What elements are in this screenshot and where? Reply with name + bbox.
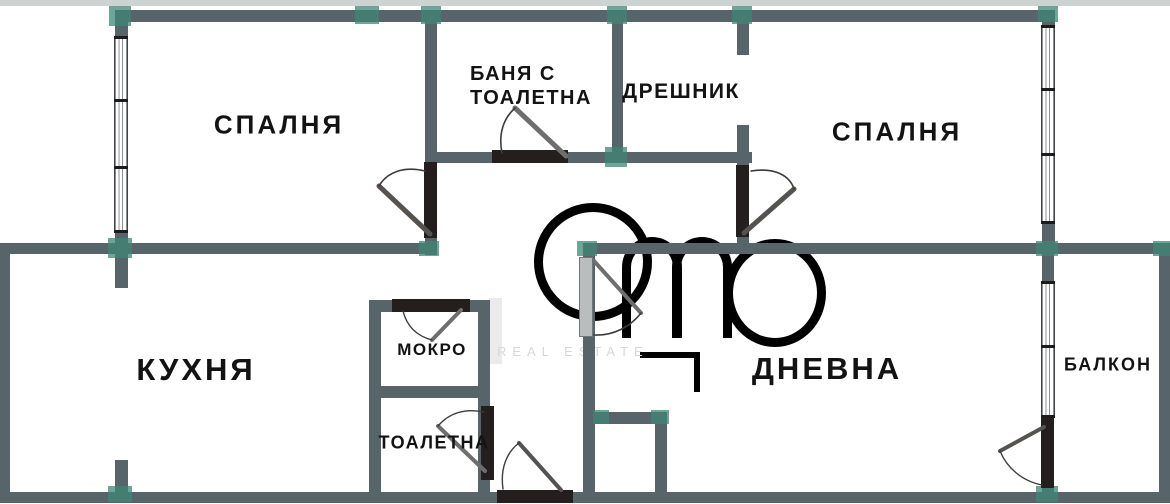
wall-joint [421,6,441,24]
window-divider [1041,221,1055,224]
door-balcony [1041,418,1054,488]
wall-joint [1153,241,1170,256]
watermark-logo-bracket [640,352,700,392]
watermark-logo-o [724,239,826,347]
wall [1159,243,1170,503]
wall [0,243,10,503]
room-label-utility: МОКРО [397,340,467,360]
room-label-bathroom-line1: БАНЯ С [470,62,592,86]
door-swing-bedroom-left [379,169,430,234]
window-divider [114,166,128,169]
wall-joint [605,147,627,167]
door-living-leaf [579,257,593,337]
door-bathroom [492,150,568,163]
wall [369,300,381,503]
wall-joint [108,486,132,502]
wall-joint [355,6,379,24]
room-label-balcony: БАЛКОН [1064,355,1152,376]
door-entry [497,490,573,503]
wall [0,243,432,254]
window-divider [1041,25,1055,28]
door-swing-entry [502,443,561,490]
door-swing-bathroom [501,108,566,156]
room-label-bathroom-line2: ТОАЛЕТНА [470,86,592,110]
door-swing-balcony [1000,427,1044,485]
wall-joint [1038,6,1058,22]
wall [425,152,752,163]
wall [583,243,1170,254]
floor-plan: REAL ESTATE [0,0,1170,504]
wall-joint [419,241,439,256]
wall-joint [732,6,752,24]
room-label-living: ДНЕВНА [752,351,902,387]
window-bedroom-left [114,36,128,233]
wall [369,386,488,398]
door-swing-bedroom-right [744,170,794,233]
window-divider [114,230,128,233]
wall-joint [109,6,131,26]
wall-joint [577,241,597,256]
window-divider [1041,345,1055,348]
wall-joint [607,6,627,24]
wall-joint [651,410,669,424]
door-bedroom-left [424,162,437,238]
window-divider [114,36,128,39]
room-label-bathroom: БАНЯ С ТОАЛЕТНА [470,62,592,110]
window-divider [1041,281,1055,284]
room-label-kitchen: КУХНЯ [136,352,255,388]
door-swing-utility [403,310,461,340]
room-label-toilet: ТОАЛЕТНА [379,433,490,454]
wall [115,10,1053,22]
page-top-edge [0,0,1170,6]
wall [655,412,667,503]
wall-joint [1036,241,1058,256]
watermark-text: REAL ESTATE [497,344,649,359]
window-divider [114,99,128,102]
wall-joint [593,410,609,424]
room-label-bedroom-right: СПАЛНЯ [832,117,962,148]
window-bedroom-right [1041,25,1055,224]
room-label-closet: ДРЕШНИК [622,80,740,104]
window-divider [1041,153,1055,156]
door-bedroom-right [736,165,749,237]
wall-joint [108,238,132,258]
window-divider [1041,88,1055,91]
room-label-bedroom-left: СПАЛНЯ [214,110,344,141]
door-utility [392,299,470,312]
window-balcony [1041,281,1055,418]
wall-joint [1036,486,1058,502]
